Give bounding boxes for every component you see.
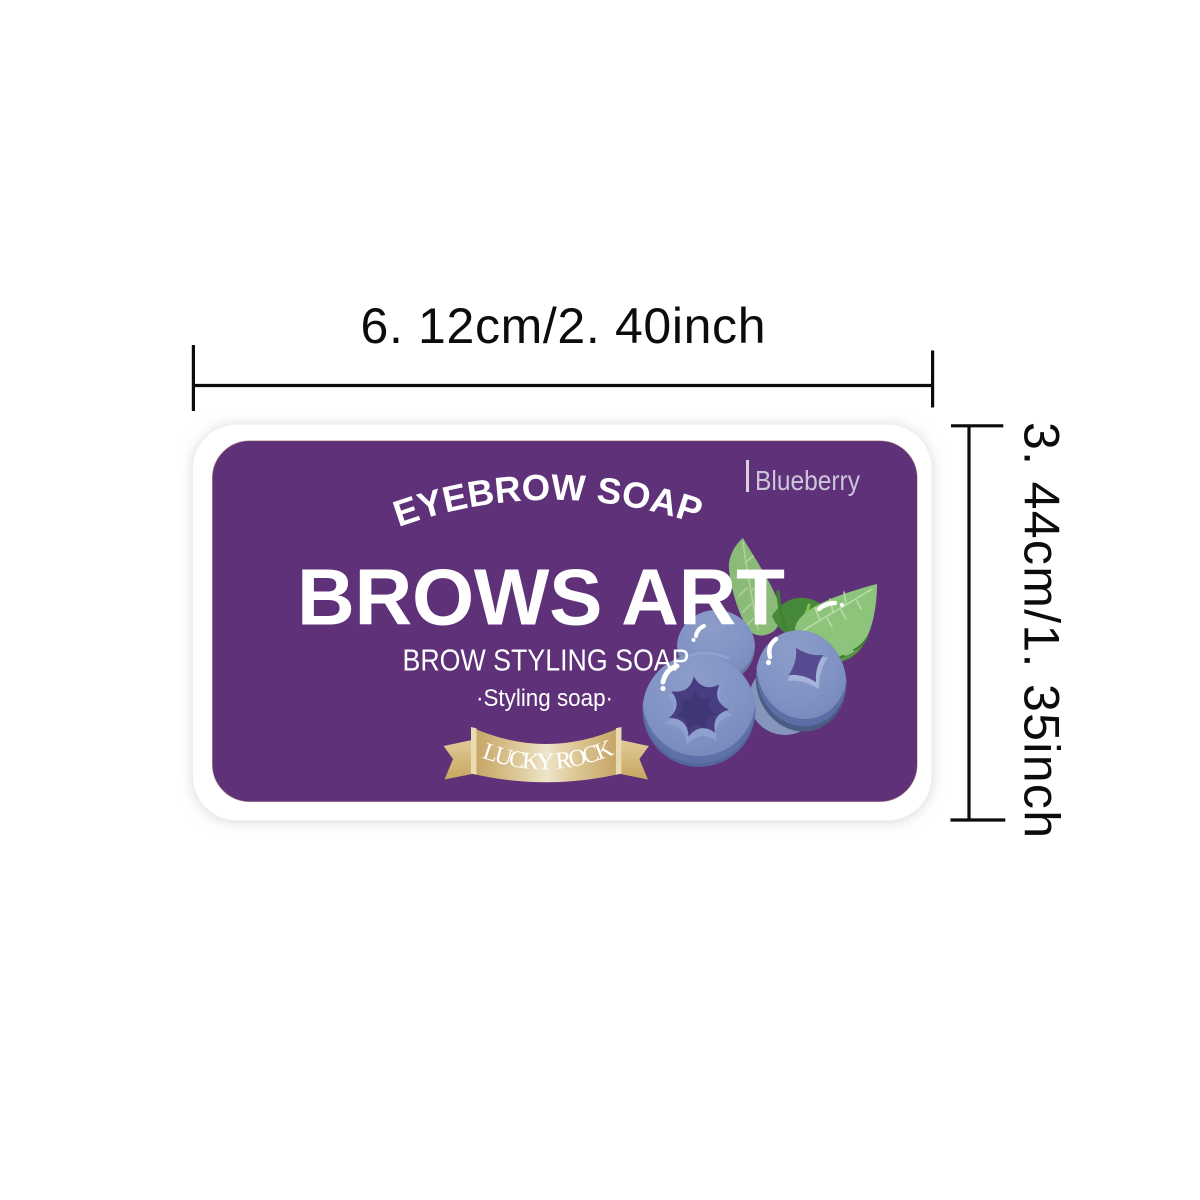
svg-text:·Styling soap·: ·Styling soap· <box>476 685 613 712</box>
svg-text:3. 44cm/1. 35inch: 3. 44cm/1. 35inch <box>1014 422 1070 838</box>
svg-text:6. 12cm/2. 40inch: 6. 12cm/2. 40inch <box>361 298 766 354</box>
svg-text:Blueberry: Blueberry <box>755 465 860 496</box>
svg-text:BROWS ART: BROWS ART <box>297 553 785 642</box>
svg-text:BROW STYLING SOAP: BROW STYLING SOAP <box>403 643 690 678</box>
